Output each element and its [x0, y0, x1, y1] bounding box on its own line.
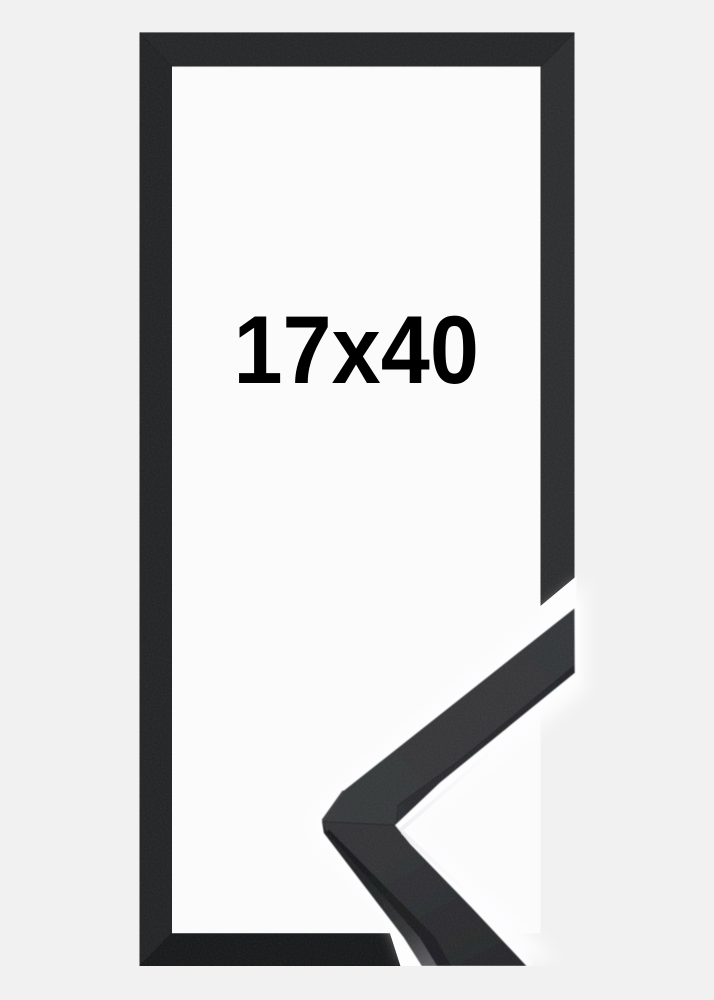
svg-text:17x40: 17x40: [233, 295, 478, 404]
